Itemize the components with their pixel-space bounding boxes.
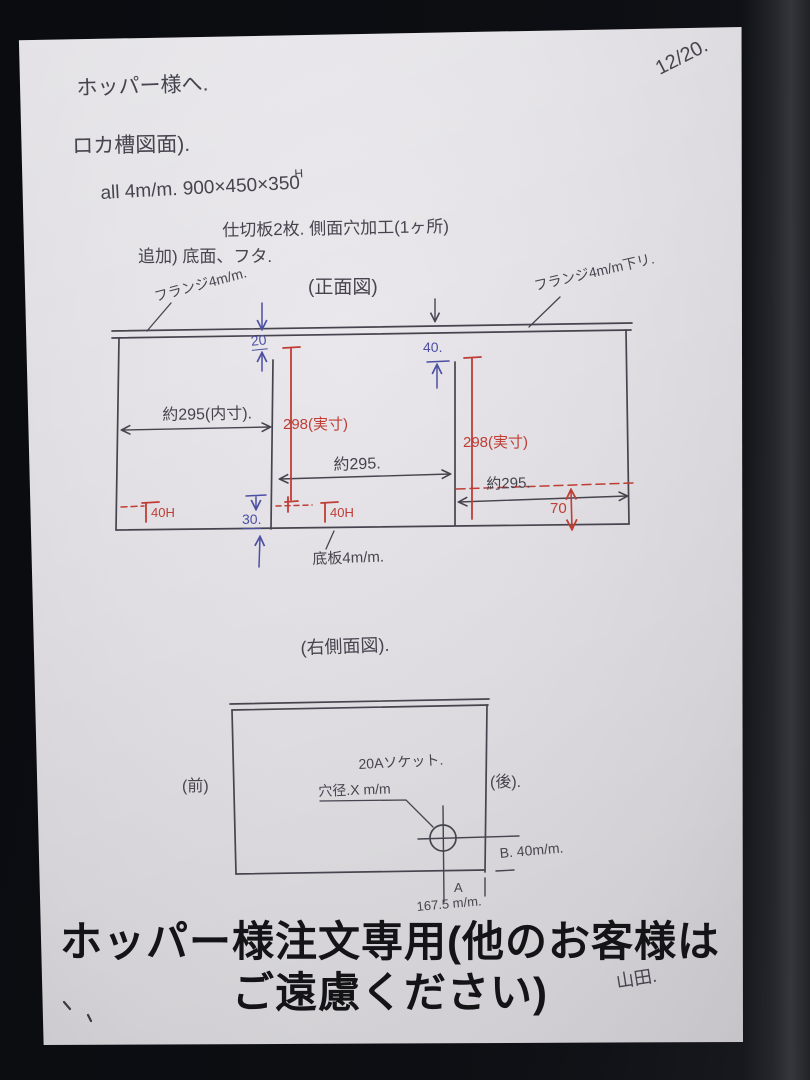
depth-70-label: 70 bbox=[550, 500, 567, 517]
gap-40-label: 40. bbox=[423, 339, 442, 355]
salutation: ホッパー様へ. bbox=[76, 67, 209, 102]
spec-line-2: 仕切板2枚. 側面穴加工(1ヶ所) bbox=[222, 212, 449, 241]
width-left-label: 約295(内寸). bbox=[162, 399, 252, 425]
front-view-title: (正面図) bbox=[308, 272, 378, 299]
hole-mid-label: 40H bbox=[330, 505, 354, 520]
partition1-height-label: 298(実寸) bbox=[283, 413, 348, 434]
bottom-gap-30-label: 30. bbox=[242, 511, 261, 529]
gap-20-label: 20 bbox=[250, 331, 267, 351]
paper-sheet bbox=[16, 25, 743, 1045]
partition2-height-label: 298(実寸) bbox=[463, 431, 528, 452]
photo-of-drawing: 12/20. ホッパー様へ. ロカ槽図面). all 4m/m. 900×450… bbox=[0, 0, 810, 1080]
bottom-plate-label: 底板4m/m. bbox=[312, 545, 384, 568]
front-side-label: (前) bbox=[182, 772, 209, 796]
spec-line-3: 追加) 底面、フタ. bbox=[138, 242, 272, 267]
side-view-title: (右側面図). bbox=[300, 631, 390, 660]
width-right-label: 約295. bbox=[486, 471, 531, 494]
spec-height-sup: H bbox=[294, 166, 303, 180]
back-side-label: (後). bbox=[490, 768, 521, 792]
hole-left-label: 40H bbox=[151, 505, 175, 520]
dim-a-label: A bbox=[454, 880, 463, 895]
hole-diameter-label: 穴径.X m/m bbox=[318, 778, 391, 801]
paper-sheen bbox=[16, 25, 743, 1045]
doc-title: ロカ槽図面). bbox=[72, 128, 190, 160]
width-mid-label: 約295. bbox=[333, 449, 381, 475]
